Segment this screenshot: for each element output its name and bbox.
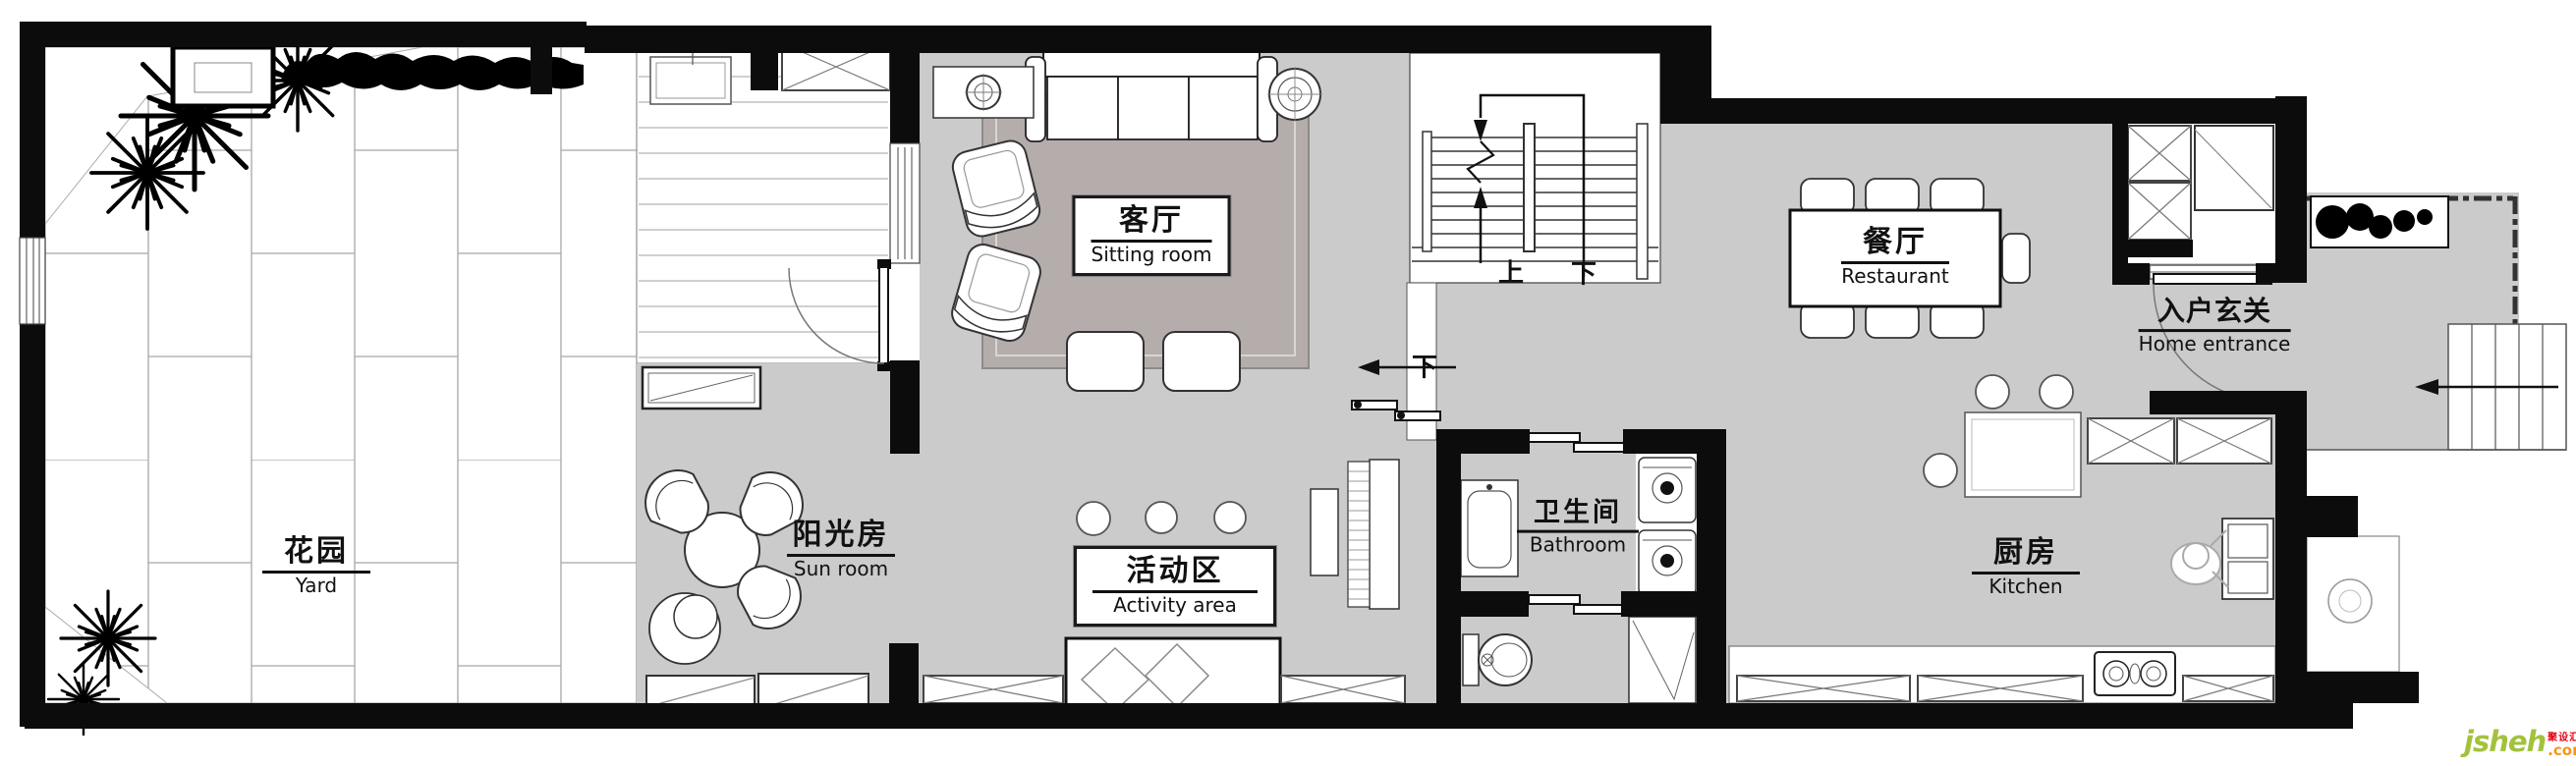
base-cabinet <box>1918 676 2083 701</box>
kitchen-sink <box>2222 519 2273 599</box>
door-leaf <box>2154 274 2271 284</box>
radiator <box>643 367 760 409</box>
activity-area-label-zh: 活动区 <box>1092 556 1258 587</box>
room-label-sun-room: 阳光房 Sun room <box>787 520 895 580</box>
stool <box>2040 375 2073 409</box>
activity-area-label-en: Activity area <box>1092 595 1258 617</box>
stairs-down-label: 下 <box>1571 254 1596 291</box>
kitchen-label-en: Kitchen <box>1972 576 2080 598</box>
sofa <box>1026 49 1277 141</box>
base-cabinet <box>2183 676 2273 701</box>
watermark-brand: jsheh <box>2464 725 2546 758</box>
pouf <box>1146 502 1177 533</box>
stool <box>1924 454 1957 487</box>
pouf <box>1214 502 1246 533</box>
restaurant-label-zh: 餐厅 <box>1841 227 1949 258</box>
shower <box>1629 617 1696 703</box>
basement-down-label: 下 <box>1412 348 1437 384</box>
ottoman <box>1163 332 1240 391</box>
yard-label-en: Yard <box>262 575 370 597</box>
ottoman <box>1067 332 1144 391</box>
garden-planter <box>173 47 273 106</box>
restaurant-label-en: Restaurant <box>1841 266 1949 288</box>
floor-plan: 花园 Yard 阳光房 Sun room 客厅 Sitting room 活动区… <box>0 0 2576 766</box>
door-leaf <box>879 267 888 363</box>
upper-cabinet <box>2088 418 2174 464</box>
room-label-sitting-room: 客厅 Sitting room <box>1073 195 1231 276</box>
low-cabinet <box>924 676 1063 703</box>
pouf <box>1077 502 1110 535</box>
low-cabinet <box>1281 676 1405 703</box>
stairs-up-label: 上 <box>1498 253 1524 290</box>
room-label-restaurant: 餐厅 Restaurant <box>1841 227 1949 288</box>
bathroom-label-zh: 卫生间 <box>1517 499 1639 527</box>
upper-cabinet <box>2177 418 2271 464</box>
sun-room-label-en: Sun room <box>787 559 895 580</box>
watermark-logo: jsheh 聚设汇 .com <box>2464 725 2576 758</box>
toilet <box>1463 634 1532 685</box>
sitting-room-label-zh: 客厅 <box>1092 205 1212 237</box>
room-label-kitchen: 厨房 Kitchen <box>1972 537 2080 598</box>
piano-bench <box>1311 489 1338 575</box>
base-cabinet <box>1737 676 1910 701</box>
vanity-sink <box>1461 480 1518 576</box>
gas-stove <box>2095 652 2175 695</box>
dryer <box>1639 530 1696 595</box>
room-label-home-entrance: 入户玄关 Home entrance <box>2139 297 2291 356</box>
bathroom-label-en: Bathroom <box>1517 535 1639 557</box>
lounge-chair <box>649 593 720 664</box>
watermark-tld: .com <box>2548 743 2576 758</box>
washing-machine <box>1639 458 1696 522</box>
home-entrance-label-en: Home entrance <box>2139 334 2291 356</box>
side-alcove <box>2307 536 2399 672</box>
home-entrance-label-zh: 入户玄关 <box>2139 297 2291 326</box>
sitting-room-label-en: Sitting room <box>1092 245 1212 266</box>
sun-room-label-zh: 阳光房 <box>787 520 895 551</box>
tree-icon <box>61 591 155 685</box>
shoe-cabinet <box>2195 126 2273 210</box>
stool <box>1976 375 2009 409</box>
yard-label-zh: 花园 <box>262 536 370 568</box>
room-label-bathroom: 卫生间 Bathroom <box>1517 499 1639 557</box>
side-table-lamp <box>933 67 1034 118</box>
sitting-room-glass-door <box>890 143 920 263</box>
tree-icon <box>91 117 203 229</box>
breakfast-counter <box>1965 412 2081 497</box>
kitchen-label-zh: 厨房 <box>1972 537 2080 569</box>
room-label-yard: 花园 Yard <box>262 536 370 597</box>
hall-closet <box>2128 126 2191 181</box>
room-label-activity-area: 活动区 Activity area <box>1074 546 1276 627</box>
hall-closet <box>2128 183 2191 240</box>
floor-plan-drawing <box>0 0 2576 766</box>
garden-window <box>20 238 45 324</box>
